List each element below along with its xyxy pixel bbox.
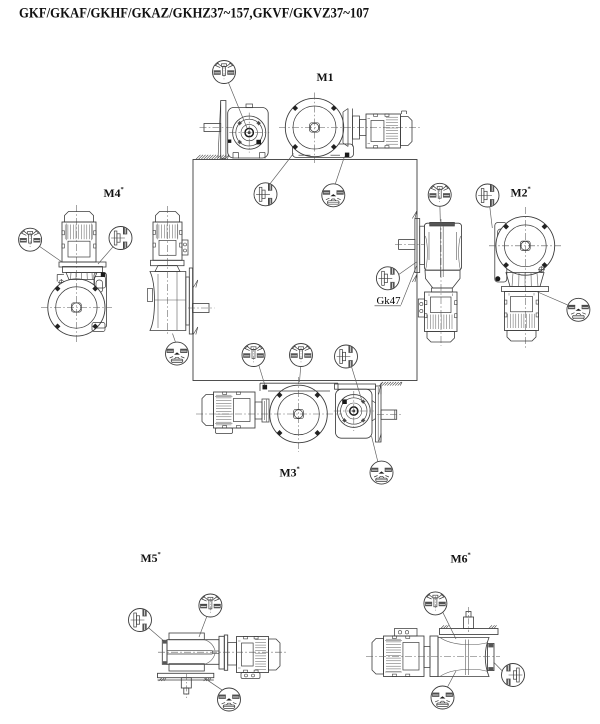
svg-text:M2: M2 bbox=[511, 186, 528, 200]
svg-text:M1: M1 bbox=[317, 70, 334, 84]
svg-text:Gk47: Gk47 bbox=[377, 295, 402, 307]
svg-text:*: * bbox=[120, 186, 123, 193]
svg-text:M5: M5 bbox=[141, 551, 158, 565]
svg-text:GKF/GKAF/GKHF/GKAZ/GKHZ37~157,: GKF/GKAF/GKHF/GKAZ/GKHZ37~157,GKVF/GKVZ3… bbox=[19, 6, 369, 22]
svg-text:*: * bbox=[527, 186, 530, 193]
svg-text:M6: M6 bbox=[451, 552, 468, 566]
svg-text:*: * bbox=[157, 551, 160, 558]
svg-text:*: * bbox=[296, 466, 299, 473]
svg-text:M3: M3 bbox=[280, 466, 297, 480]
svg-text:M4: M4 bbox=[104, 186, 121, 200]
svg-text:*: * bbox=[467, 552, 470, 559]
